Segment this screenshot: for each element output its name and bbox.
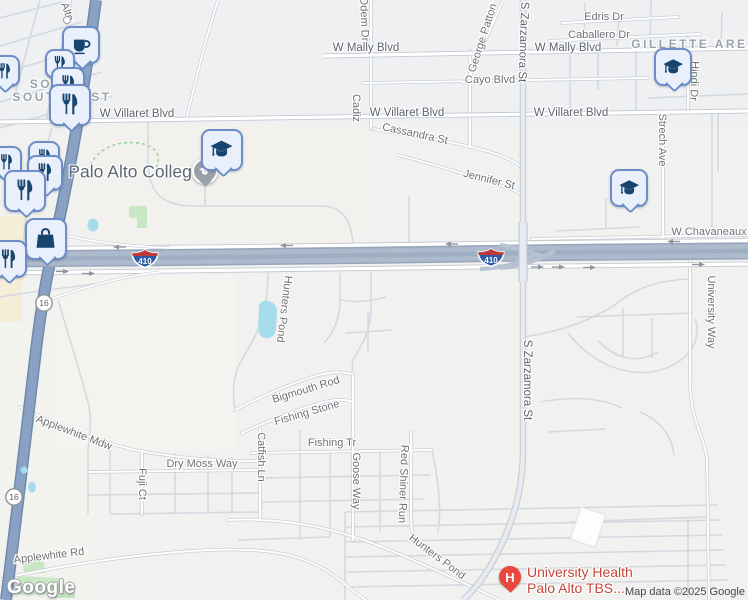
fork-knife-icon	[0, 153, 15, 171]
street-label-strech: Strech Ave	[656, 114, 668, 167]
street-label-villaret-left: W Villaret Blvd	[100, 108, 175, 120]
building-footprint	[570, 507, 605, 547]
street-label-chavaneaux: W Chavaneaux	[671, 226, 746, 238]
neighborhood-label-gillette: GILLETTE AREA	[631, 37, 748, 51]
restaurant-pin[interactable]	[0, 55, 20, 87]
fork-knife-icon	[57, 92, 82, 117]
street-label-mally-left: W Mally Blvd	[333, 42, 399, 54]
graduation-cap-icon	[662, 56, 684, 78]
poi-label-palo-alto-college[interactable]: Palo Alto College	[68, 162, 201, 183]
street-label-university-way: University Way	[705, 276, 717, 349]
education-pin-college[interactable]	[201, 129, 243, 171]
fork-knife-icon	[12, 178, 37, 203]
shopping-pin[interactable]	[25, 218, 67, 260]
graduation-cap-icon	[618, 177, 640, 199]
street-label-odem: Odem Dr	[357, 0, 371, 42]
poi-label-hospital-line2[interactable]: Palo Alto TBS...	[527, 580, 625, 596]
restaurant-pin[interactable]	[0, 240, 27, 278]
state-16-shield-north: 16	[34, 293, 54, 313]
map-canvas[interactable]: SOUTH SOUTHWEST GILLETTE AREA W Mally Bl…	[0, 0, 748, 600]
street-label-catfish: Catfish Ln	[255, 432, 267, 482]
street-label-fishing-tr: Fishing Tr	[308, 437, 356, 449]
street-label-goose: Goose Way	[350, 452, 362, 509]
street-label-villaret-right: W Villaret Blvd	[534, 107, 609, 119]
svg-text:16: 16	[39, 298, 49, 308]
google-logo[interactable]: Google	[7, 577, 75, 599]
fork-knife-icon	[0, 248, 19, 270]
poi-dot	[63, 16, 71, 24]
street-label-cayo: Cayo Blvd	[465, 74, 515, 86]
svg-text:410: 410	[138, 257, 152, 266]
hospital-pin[interactable]: H	[499, 566, 521, 588]
street-label-villaret-mid: W Villaret Blvd	[370, 107, 445, 119]
street-label-dry-moss: Dry Moss Way	[166, 458, 237, 470]
state-16-shield-south: 16	[4, 487, 24, 507]
street-label-caballero: Caballero Dr	[568, 29, 630, 41]
education-pin-east[interactable]	[610, 169, 648, 207]
svg-text:16: 16	[9, 492, 19, 502]
education-pin-northeast[interactable]	[654, 48, 692, 86]
street-label-edris: Edris Dr	[584, 11, 624, 23]
fork-knife-icon	[0, 62, 13, 80]
shopping-bag-icon	[33, 226, 58, 251]
interstate-410-shield-east: 410	[476, 248, 506, 268]
poi-label-hospital-line1[interactable]: University Health	[527, 564, 633, 580]
street-label-mally-right: W Mally Blvd	[535, 42, 601, 54]
street-label-zarzamora-mid: S Zarzamora St	[521, 340, 533, 421]
svg-text:410: 410	[484, 256, 498, 265]
restaurant-pin[interactable]	[49, 84, 91, 126]
graduation-cap-icon	[209, 137, 234, 162]
street-label-cadiz: Cadiz	[350, 94, 362, 122]
street-label-fuji: Fuji Ct	[136, 468, 148, 500]
restaurant-pin[interactable]	[4, 170, 46, 212]
interstate-410-shield-west: 410	[130, 249, 160, 269]
road-network	[0, 0, 748, 600]
map-data-attribution: Map data ©2025 Google	[625, 586, 745, 598]
